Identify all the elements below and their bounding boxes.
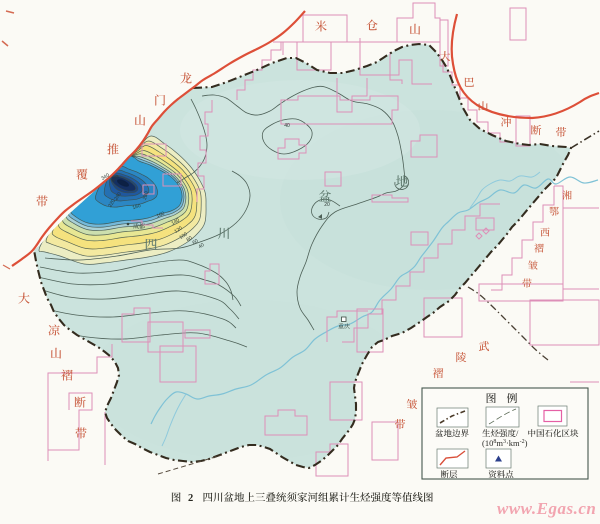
svg-text:www.Egas.cn: www.Egas.cn xyxy=(497,499,596,518)
svg-text:40: 40 xyxy=(284,123,290,129)
svg-text:2: 2 xyxy=(188,493,193,504)
svg-text:20: 20 xyxy=(324,202,330,208)
